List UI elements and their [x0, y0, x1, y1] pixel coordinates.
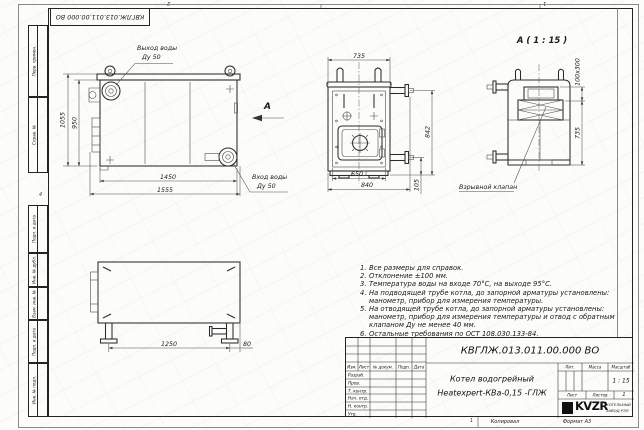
zone-mark-top-2: 2: [167, 0, 170, 5]
zone-mark-top-1: 1: [543, 0, 546, 5]
tb-col-doc: № докум.: [373, 364, 393, 369]
title-block: Изм. Лист № докум. Подп. Дата Разраб. Пр…: [345, 337, 633, 417]
tb-scale-label: Масштаб: [611, 365, 630, 370]
note-line: клапаном Ду не менее 40 мм.: [355, 321, 629, 329]
detail-a-title: А ( 1 : 15 ): [517, 36, 567, 46]
inlet-dn-label: Ду 50: [257, 183, 276, 190]
tb-lit-label: Лит.: [565, 365, 574, 370]
note-number: 3.: [355, 280, 369, 288]
left-box-label: Инв. № подл.: [31, 376, 36, 404]
left-box-label: Справ. №: [31, 125, 36, 145]
tb-product-name-1: Котел водогрейный: [450, 375, 534, 384]
drawing-sheet: КВГЛЖ.013.011.00.000 ВО 2 1 4 1 Перв. пр…: [0, 0, 644, 430]
note-text: Отклонение ±100 мм.: [369, 272, 629, 280]
left-box-sprav-no: Справ. №: [28, 97, 48, 173]
note-line: 3.Температура воды на входе 70°С, на вых…: [355, 280, 629, 288]
note-number: 2.: [355, 272, 369, 280]
left-box-inv-podl: Инв. № подл.: [28, 363, 48, 417]
note-line: манометр, прибор для измерения температу…: [355, 297, 629, 305]
technical-notes: 1.Все размеры для справок. 2.Отклонение …: [355, 264, 629, 338]
tb-row-nkontr: Н. контр.: [348, 404, 368, 409]
zone-mark-left-4: 4: [39, 193, 42, 198]
dim-840: 840: [361, 182, 373, 189]
note-line: 5.На отводящей трубе котла, до запорной …: [355, 305, 629, 313]
note-line: манометр, прибор для измерения температу…: [355, 313, 629, 321]
note-text: На отводящей трубе котла, до запорной ар…: [369, 305, 629, 313]
dim-1250: 1250: [161, 341, 177, 348]
tb-sheets-value: 1: [622, 392, 625, 398]
zone-mark-bottom-1: 1: [470, 419, 473, 424]
tb-row-nachotd: Нач. отд.: [348, 396, 368, 401]
inlet-label: Вход воды: [252, 174, 287, 181]
tb-scale-value: 1 : 15: [612, 378, 629, 385]
tb-mass-label: Масса: [589, 365, 602, 370]
tb-col-izm: Изм.: [347, 364, 356, 369]
left-box-perv-primen: Перв. примен.: [28, 25, 48, 97]
detail-a-linework: [459, 64, 585, 192]
dim-842: 842: [424, 126, 431, 138]
left-box-podp-data-2: Подп. и дата: [28, 320, 48, 363]
left-box-label: Перв. примен.: [31, 46, 36, 77]
top-designation-text: КВГЛЖ.013.011.00.000 ВО: [56, 13, 144, 21]
dim-flue: 100х300: [574, 58, 581, 86]
dim-1450: 1450: [160, 174, 176, 181]
view-a-arrow-label: А: [264, 102, 271, 112]
kvzr-logo-icon: [562, 402, 573, 415]
dim-80: 80: [243, 341, 251, 348]
note-text: клапаном Ду не менее 40 мм.: [369, 321, 629, 329]
note-line: 4.На подводящей трубе котла, до запорной…: [355, 289, 629, 297]
copied-label: Копировал: [491, 419, 520, 425]
left-box-inv-dubl: Инв. № дубл.: [28, 253, 48, 287]
tb-row-razrab: Разраб.: [348, 373, 364, 378]
note-line: 2.Отклонение ±100 мм.: [355, 272, 629, 280]
format-label: Формат А3: [563, 419, 591, 425]
tb-sheets-label: Листов: [593, 393, 608, 398]
left-box-vzam-inv: Взам. инв. №: [28, 287, 48, 320]
note-text: Температура воды на входе 70°С, на выход…: [369, 280, 629, 288]
note-text: манометр, прибор для измерения температу…: [369, 313, 629, 321]
kvzr-logo-text: KVZR: [575, 399, 608, 413]
left-box-podp-data-1: Подп. и дата: [28, 205, 48, 253]
left-box-label: Подп. и дата: [31, 215, 36, 243]
left-box-label: Подп. и дата: [31, 328, 36, 356]
outlet-label: Выход воды: [137, 45, 177, 52]
note-number: 4.: [355, 289, 369, 297]
tb-designation: КВГЛЖ.013.011.00.000 ВО: [461, 345, 599, 356]
dim-735-front: 735: [353, 53, 365, 60]
note-text: Все размеры для справок.: [369, 264, 629, 272]
tb-row-tkontr: Т. контр.: [348, 388, 367, 393]
tb-col-data: Дата: [414, 364, 424, 369]
left-box-label: Инв. № дубл.: [31, 256, 36, 284]
tb-sheet-label: Лист: [567, 393, 577, 398]
outlet-dn-label: Ду 50: [142, 54, 161, 61]
note-number: 5.: [355, 305, 369, 313]
tb-row-utv: Утв.: [348, 412, 357, 417]
note-line: 1.Все размеры для справок.: [355, 264, 629, 272]
tb-org-line-2: ЗАВОД РЭП: [606, 408, 629, 413]
dim-950: 950: [71, 117, 78, 129]
note-number: [355, 321, 369, 329]
note-number: 1.: [355, 264, 369, 272]
tb-product-name-2: Heatexpert-КВа-0,15 -ГЛЖ: [437, 389, 546, 398]
bottom-view-linework: [91, 262, 254, 352]
tb-row-prov: Пров.: [348, 381, 360, 386]
note-number: [355, 297, 369, 305]
tb-org-line-1: КОТЕЛЬНЫЙ: [606, 402, 631, 407]
front-view-linework: [327, 57, 435, 194]
dim-1055: 1055: [60, 112, 67, 128]
dim-1555: 1555: [157, 187, 173, 194]
note-text: манометр, прибор для измерения температу…: [369, 297, 629, 305]
left-box-label: Взам. инв. №: [31, 290, 36, 318]
note-number: [355, 313, 369, 321]
explosion-valve-label: Взрывной клапан: [459, 184, 517, 191]
tb-col-podp: Подп.: [398, 364, 410, 369]
note-text: На подводящей трубе котла, до запорной а…: [369, 289, 629, 297]
dim-105: 105: [414, 179, 421, 191]
top-designation-stamp: КВГЛЖ.013.011.00.000 ВО: [50, 8, 150, 26]
tb-col-list: Лист: [359, 364, 369, 369]
dim-650: 650: [351, 171, 363, 178]
dim-735-detail: 735: [574, 127, 581, 139]
